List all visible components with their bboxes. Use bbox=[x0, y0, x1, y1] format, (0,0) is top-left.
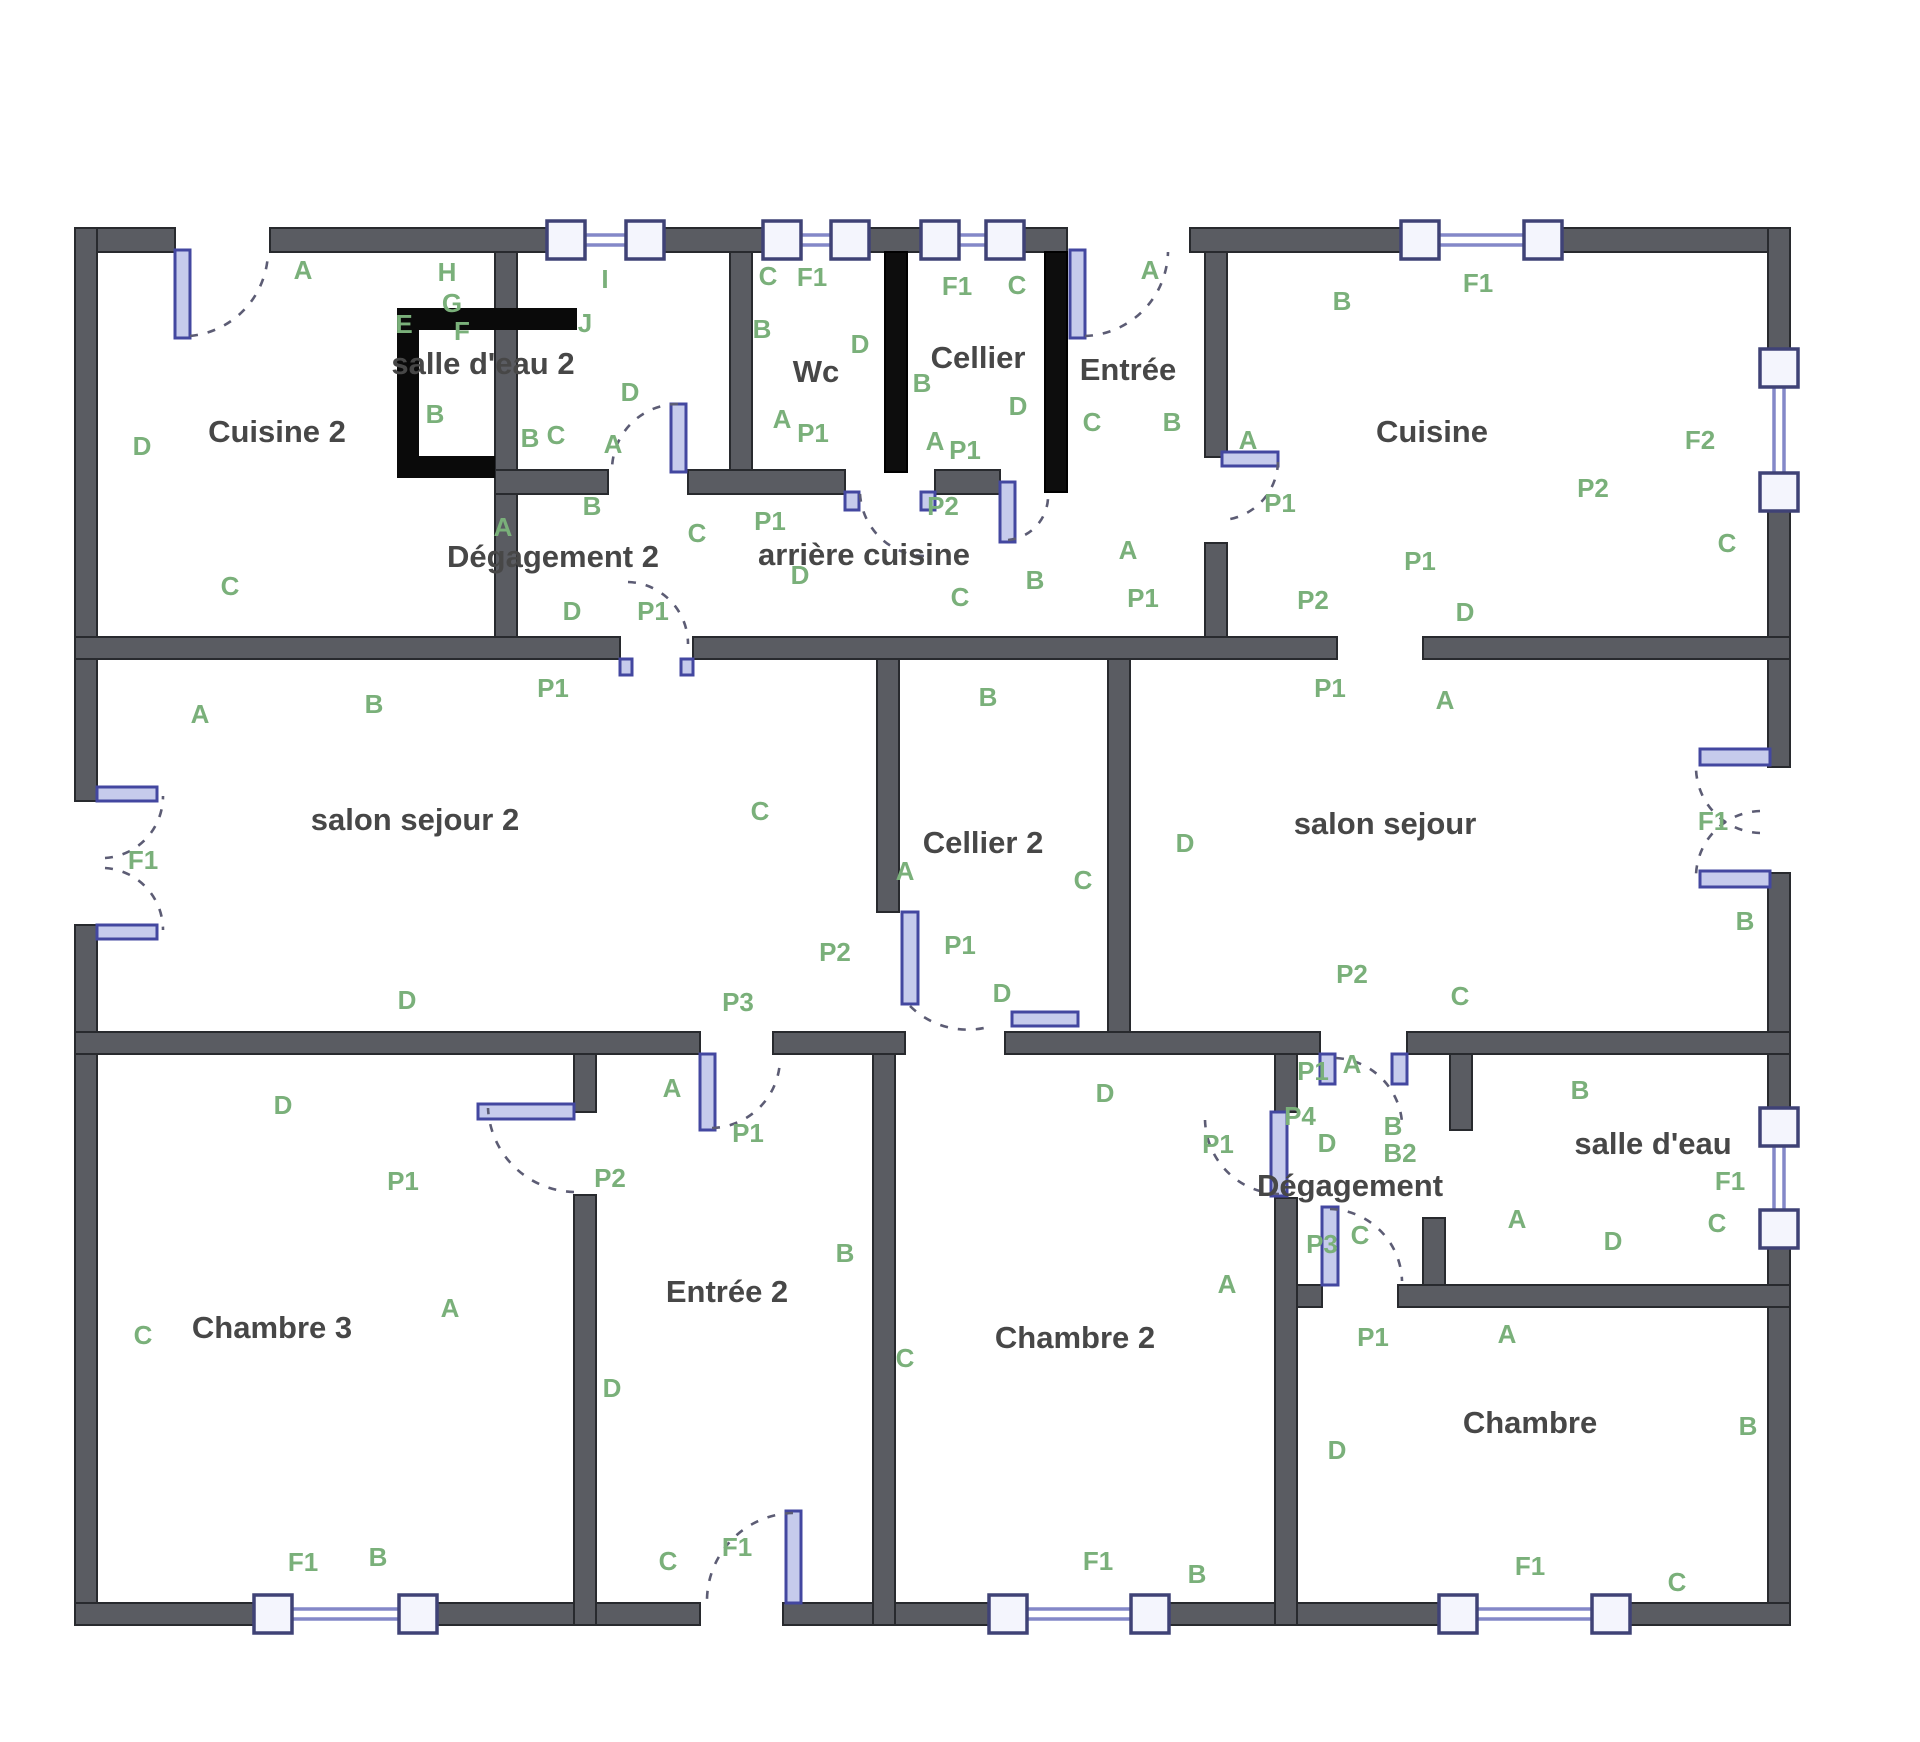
room-label: Chambre 3 bbox=[192, 1310, 352, 1345]
door-leaf bbox=[620, 659, 632, 675]
zone-label: C bbox=[1451, 981, 1470, 1011]
window-square bbox=[547, 221, 585, 259]
zone-label: A bbox=[1119, 535, 1138, 565]
zone-label: F bbox=[454, 316, 470, 346]
zone-label: F1 bbox=[1463, 268, 1493, 298]
zone-label: P1 bbox=[1404, 546, 1436, 576]
room-label: Chambre bbox=[1463, 1405, 1597, 1440]
zone-label: A bbox=[191, 699, 210, 729]
room-label: Dégagement 2 bbox=[447, 539, 659, 574]
zone-label: A bbox=[773, 404, 792, 434]
zone-label: D bbox=[851, 329, 870, 359]
zone-label: C bbox=[688, 518, 707, 548]
door-leaf bbox=[681, 659, 693, 675]
window-square bbox=[831, 221, 869, 259]
wall bbox=[1297, 1285, 1322, 1307]
zone-label: D bbox=[1328, 1435, 1347, 1465]
zone-label: P4 bbox=[1284, 1101, 1316, 1131]
zone-label: D bbox=[603, 1373, 622, 1403]
zone-label: B bbox=[1163, 407, 1182, 437]
zone-label: C bbox=[1718, 528, 1737, 558]
zone-label: D bbox=[1009, 391, 1028, 421]
zone-label: E bbox=[395, 309, 412, 339]
zone-label: P1 bbox=[1314, 673, 1346, 703]
window-square bbox=[763, 221, 801, 259]
zone-label: B bbox=[426, 399, 445, 429]
zone-label: C bbox=[1074, 865, 1093, 895]
zone-label: P1 bbox=[1357, 1322, 1389, 1352]
zone-label: D bbox=[993, 978, 1012, 1008]
zone-label: J bbox=[578, 308, 592, 338]
zone-label: A bbox=[1218, 1269, 1237, 1299]
zone-label: P2 bbox=[594, 1163, 626, 1193]
zone-label: D bbox=[1176, 828, 1195, 858]
door-leaf bbox=[1012, 1012, 1078, 1026]
window-square bbox=[399, 1595, 437, 1633]
door-leaf bbox=[671, 404, 686, 472]
window-square bbox=[989, 1595, 1027, 1633]
door-swing-arc bbox=[488, 1108, 574, 1192]
room-label: Entrée bbox=[1080, 352, 1176, 387]
door-leaf bbox=[97, 787, 157, 801]
zone-label: H bbox=[438, 257, 457, 287]
zone-label: F1 bbox=[722, 1532, 752, 1562]
wall bbox=[75, 925, 97, 1625]
zone-label: A bbox=[896, 856, 915, 886]
zone-label: C bbox=[1351, 1220, 1370, 1250]
zone-label: C bbox=[134, 1320, 153, 1350]
door-leaf bbox=[175, 250, 190, 338]
zone-label: P1 bbox=[944, 930, 976, 960]
floor-plan: Cuisine 2salle d'eau 2WcCellierEntréeCui… bbox=[0, 0, 1920, 1742]
zone-label: B bbox=[836, 1238, 855, 1268]
wall bbox=[1423, 637, 1790, 659]
wall bbox=[693, 637, 1337, 659]
zone-label: B bbox=[365, 689, 384, 719]
wall bbox=[574, 1195, 596, 1625]
wall bbox=[688, 470, 845, 494]
window-square bbox=[1760, 1108, 1798, 1146]
zone-label: A bbox=[441, 1293, 460, 1323]
zone-label: B bbox=[1571, 1075, 1590, 1105]
zone-labels-layer: AHGEFIJDBBCACF1BDAP1F1CBDAP1ACBAP1BF1F2C… bbox=[128, 255, 1758, 1597]
zone-label: C bbox=[1668, 1567, 1687, 1597]
door-leaf bbox=[902, 912, 918, 1004]
zone-label: B bbox=[753, 314, 772, 344]
wall bbox=[574, 1054, 596, 1112]
zone-label: C bbox=[751, 796, 770, 826]
zone-label: D bbox=[621, 377, 640, 407]
window-square bbox=[1131, 1595, 1169, 1633]
zone-label: C bbox=[1008, 270, 1027, 300]
door-leaf bbox=[97, 925, 157, 939]
zone-label: C bbox=[659, 1546, 678, 1576]
window-square bbox=[921, 221, 959, 259]
zone-label: A bbox=[1508, 1204, 1527, 1234]
zone-label: B bbox=[1188, 1559, 1207, 1589]
wall bbox=[1205, 543, 1227, 637]
zone-label: F2 bbox=[1685, 425, 1715, 455]
window-square bbox=[254, 1595, 292, 1633]
room-label: salle d'eau 2 bbox=[391, 346, 574, 381]
zone-label: G bbox=[442, 288, 462, 318]
floor-plan-page: Cuisine 2salle d'eau 2WcCellierEntréeCui… bbox=[0, 0, 1920, 1742]
door-leaf bbox=[1392, 1054, 1407, 1084]
zone-label: F1 bbox=[128, 845, 158, 875]
zone-label: A bbox=[926, 426, 945, 456]
zone-label: P1 bbox=[537, 673, 569, 703]
zone-label: D bbox=[133, 431, 152, 461]
zone-label: P2 bbox=[819, 937, 851, 967]
zone-label: A bbox=[1436, 685, 1455, 715]
zone-label: P1 bbox=[1297, 1056, 1329, 1086]
door-leaf bbox=[1000, 482, 1015, 542]
zone-label: B bbox=[1736, 906, 1755, 936]
wall bbox=[1045, 252, 1067, 492]
zone-label: B bbox=[1026, 565, 1045, 595]
zone-label: P1 bbox=[1202, 1129, 1234, 1159]
zone-label: B bbox=[521, 423, 540, 453]
room-label: Cuisine 2 bbox=[208, 414, 346, 449]
door-leaf bbox=[700, 1054, 715, 1130]
zone-label: A bbox=[604, 429, 623, 459]
zone-label: F1 bbox=[942, 271, 972, 301]
zone-label: B bbox=[913, 368, 932, 398]
wall bbox=[873, 1054, 895, 1625]
room-label: Entrée 2 bbox=[666, 1274, 788, 1309]
zone-label: B bbox=[1384, 1111, 1403, 1141]
zone-label: P2 bbox=[1297, 585, 1329, 615]
zone-label: P1 bbox=[732, 1118, 764, 1148]
room-label: Chambre 2 bbox=[995, 1320, 1155, 1355]
zone-label: A bbox=[294, 255, 313, 285]
zone-label: P1 bbox=[637, 596, 669, 626]
zone-label: B bbox=[369, 1542, 388, 1572]
door-swing-arc bbox=[190, 252, 268, 336]
zone-label: F1 bbox=[1515, 1551, 1545, 1581]
zone-label: F1 bbox=[1698, 806, 1728, 836]
fixture bbox=[397, 308, 577, 330]
door-swing-arc bbox=[105, 868, 163, 930]
wall bbox=[773, 1032, 905, 1054]
zone-label: D bbox=[791, 560, 810, 590]
wall bbox=[1275, 1198, 1297, 1625]
zone-label: A bbox=[1343, 1049, 1362, 1079]
zone-label: A bbox=[494, 512, 513, 542]
door-leaf bbox=[1700, 749, 1770, 765]
window-square bbox=[1524, 221, 1562, 259]
zone-label: D bbox=[1604, 1226, 1623, 1256]
room-label: Cellier 2 bbox=[923, 825, 1044, 860]
zone-label: F1 bbox=[1715, 1166, 1745, 1196]
room-label: Wc bbox=[793, 354, 840, 389]
wall bbox=[730, 252, 752, 470]
door-leaf bbox=[845, 492, 859, 510]
zone-label: P2 bbox=[1577, 473, 1609, 503]
window-square bbox=[1439, 1595, 1477, 1633]
door-leaf bbox=[478, 1104, 574, 1119]
wall bbox=[1398, 1285, 1790, 1307]
zone-label: C bbox=[1083, 407, 1102, 437]
zone-label: C bbox=[759, 261, 778, 291]
room-label: Cellier bbox=[931, 340, 1026, 375]
window-square bbox=[1760, 1210, 1798, 1248]
wall bbox=[1005, 1032, 1320, 1054]
wall bbox=[1205, 252, 1227, 457]
zone-label: P1 bbox=[387, 1166, 419, 1196]
room-label: Dégagement bbox=[1257, 1168, 1443, 1203]
window-square bbox=[1760, 473, 1798, 511]
zone-label: P3 bbox=[1306, 1229, 1338, 1259]
zone-label: B bbox=[1333, 286, 1352, 316]
door-swing-arc bbox=[910, 1006, 984, 1030]
zone-label: D bbox=[1456, 597, 1475, 627]
wall bbox=[1108, 659, 1130, 1054]
window-square bbox=[626, 221, 664, 259]
zone-label: P2 bbox=[927, 491, 959, 521]
room-label: salon sejour 2 bbox=[311, 802, 519, 837]
room-label: salle d'eau bbox=[1574, 1126, 1731, 1161]
room-label: salon sejour bbox=[1294, 806, 1477, 841]
zone-label: P1 bbox=[1264, 488, 1296, 518]
zone-label: F1 bbox=[797, 262, 827, 292]
wall bbox=[885, 252, 907, 472]
zone-label: B bbox=[979, 682, 998, 712]
door-leaf bbox=[786, 1511, 801, 1603]
zone-label: D bbox=[1096, 1078, 1115, 1108]
zone-label: C bbox=[221, 571, 240, 601]
zone-label: P1 bbox=[1127, 583, 1159, 613]
zone-label: D bbox=[563, 596, 582, 626]
zone-label: A bbox=[1141, 255, 1160, 285]
zone-label: D bbox=[398, 985, 417, 1015]
zone-label: A bbox=[1498, 1319, 1517, 1349]
wall bbox=[1450, 1054, 1472, 1130]
zone-label: D bbox=[1318, 1128, 1337, 1158]
wall bbox=[75, 1032, 700, 1054]
zone-label: C bbox=[547, 420, 566, 450]
zone-label: B bbox=[1739, 1411, 1758, 1441]
wall bbox=[75, 637, 620, 659]
zone-label: C bbox=[951, 582, 970, 612]
room-label: Cuisine bbox=[1376, 414, 1488, 449]
door-leaf bbox=[1070, 250, 1085, 338]
zone-label: F1 bbox=[288, 1547, 318, 1577]
window-square bbox=[1401, 221, 1439, 259]
zone-label: B2 bbox=[1383, 1138, 1416, 1168]
zone-label: P3 bbox=[722, 987, 754, 1017]
window-square bbox=[986, 221, 1024, 259]
zone-label: C bbox=[1708, 1208, 1727, 1238]
zone-label: A bbox=[1239, 425, 1258, 455]
room-labels-layer: Cuisine 2salle d'eau 2WcCellierEntréeCui… bbox=[192, 340, 1732, 1440]
wall bbox=[1407, 1032, 1790, 1054]
zone-label: A bbox=[663, 1073, 682, 1103]
zone-label: P1 bbox=[754, 506, 786, 536]
zone-label: B bbox=[583, 491, 602, 521]
window-square bbox=[1592, 1595, 1630, 1633]
zone-label: P1 bbox=[797, 418, 829, 448]
wall bbox=[75, 228, 97, 801]
zone-label: C bbox=[896, 1343, 915, 1373]
zone-label: I bbox=[601, 264, 608, 294]
zone-label: P2 bbox=[1336, 959, 1368, 989]
window-square bbox=[1760, 349, 1798, 387]
fixture bbox=[397, 456, 495, 478]
door-leaf bbox=[1700, 871, 1770, 887]
zone-label: P1 bbox=[949, 435, 981, 465]
fixtures-layer bbox=[397, 308, 577, 478]
zone-label: F1 bbox=[1083, 1546, 1113, 1576]
zone-label: D bbox=[274, 1090, 293, 1120]
